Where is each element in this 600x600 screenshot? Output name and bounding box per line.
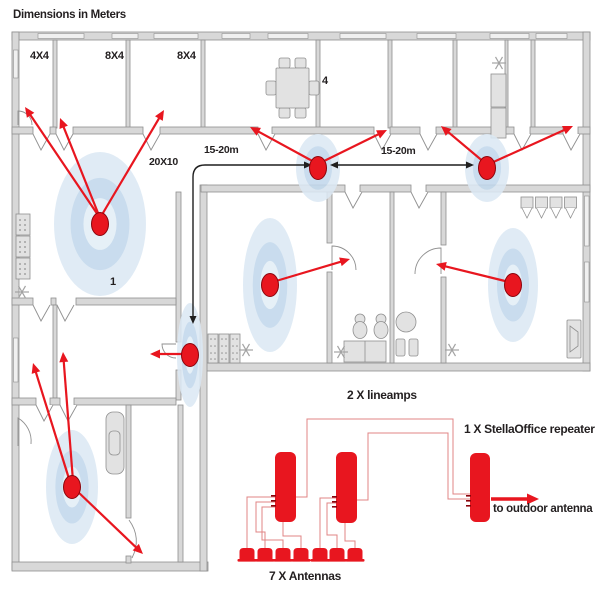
shelf-dot [221,358,223,360]
signal-arrowhead [150,350,160,359]
shelf-dot [232,358,234,360]
chair [409,339,418,356]
device-port [466,500,471,502]
shelf-dot [221,345,223,347]
wall [453,40,457,128]
shelf-row [208,334,240,363]
shelf-dot [221,338,223,340]
device-port [466,495,471,497]
shelf-dot [214,352,216,354]
ac-snowflake-icon [492,57,506,69]
antenna-body [258,548,273,559]
wall [50,127,56,134]
wire [327,503,337,549]
shelf-v [16,214,30,279]
wall [53,305,57,398]
wire [345,523,355,549]
shelf-dot [19,273,21,275]
wall [327,272,332,363]
chair [279,108,290,118]
shelf-dot [210,338,212,340]
antenna-dot [310,157,327,180]
lineamp-2 [336,452,357,523]
window [154,34,198,39]
chair [396,339,405,356]
door-arc [332,246,356,270]
hook-point [551,208,561,218]
device-port [271,505,276,507]
wall [53,40,57,128]
stellaoffice-repeater [470,453,490,522]
chair [295,108,306,118]
schematic-antenna [292,548,311,562]
wall [441,192,446,245]
wall [390,127,420,134]
schematic-antenna [328,548,347,562]
antenna-body [240,548,255,559]
shelf-dot [214,358,216,360]
device-port [271,495,276,497]
wall [201,40,205,128]
wall [12,562,208,571]
shelf-dot [24,229,26,231]
wall [51,298,56,305]
wall [327,192,332,243]
shelf-dot [19,224,21,226]
schematic-antenna [346,548,365,562]
window [222,34,250,39]
door-arc [18,418,31,446]
wall [73,127,143,134]
antenna-dot [182,344,199,367]
shelf-dot [232,338,234,340]
bathtub-inner [109,431,120,455]
shelf-dot [24,268,26,270]
lineamp-1 [275,452,296,522]
shelf-dot [210,345,212,347]
hook-point [566,208,576,218]
antenna-base [328,559,347,562]
chair [295,58,306,68]
cabinet-upper [491,74,506,107]
antenna-body [294,548,309,559]
chair [266,81,276,95]
antenna-base [238,559,257,562]
door-swing [514,134,531,150]
window [490,34,529,39]
shelf-dot [225,345,227,347]
equipment-schematic [238,419,540,562]
round-table [396,312,416,332]
signal-arrowhead [339,258,350,267]
ac-snowflake-icon [445,344,459,356]
window [112,34,138,39]
device-port [332,496,337,498]
wire [256,502,275,549]
door-swing [345,192,362,208]
wall [50,398,60,405]
wall [126,40,130,128]
window [14,338,19,382]
hook-box [550,197,562,208]
shelf-dot [19,246,21,248]
wall [126,405,131,518]
hook-point [537,208,547,218]
measure-label-left: 15-20m [204,144,238,156]
shelf-dot [236,352,238,354]
signal-arrowhead [25,107,34,118]
signal-arrowhead [59,352,68,362]
shelf-dot [214,345,216,347]
wall [176,192,181,342]
antenna-body [330,548,345,559]
antenna-base [292,559,311,562]
device-port [271,500,276,502]
chair [309,81,319,95]
wall [531,40,535,128]
shelf-dot [236,358,238,360]
floor-plan-page: Dimensions in Meters 4X4 8X4 8X4 4 1 20X… [0,0,600,600]
room-label-4: 4 [322,75,328,87]
shelf-dot [232,352,234,354]
page-title: Dimensions in Meters [13,9,126,21]
room-label-8x4-a: 8X4 [105,50,124,62]
antenna-dot [479,157,496,180]
wall [74,398,176,405]
bathtub [106,412,124,474]
wall [390,192,394,363]
device-port [332,501,337,503]
wire [296,419,470,497]
hook-box [521,197,533,208]
wall [200,363,590,371]
door-swing [33,305,50,321]
shelf-dot [210,352,212,354]
shelf-dot [225,338,227,340]
round-table [396,312,416,332]
schematic-antenna [256,548,275,562]
shelf-unit [16,214,30,235]
wall [360,185,411,192]
door-arc [129,520,136,558]
hook-box [565,197,577,208]
shelf-dot [221,352,223,354]
shelf-dot [24,263,26,265]
antenna-dot [92,213,109,236]
shelf-dot [225,358,227,360]
cabinet [491,74,506,138]
antenna-dot [262,274,279,297]
device-port [466,505,471,507]
shelf-dot [214,338,216,340]
door-swing [563,134,580,150]
wall [12,398,36,405]
counter [344,341,386,362]
wall [426,185,590,192]
outdoor-antenna-label: to outdoor antenna [493,503,592,515]
wire [283,522,301,549]
conference-table [276,68,309,108]
hook-box [536,197,548,208]
schematic-antenna [238,548,257,562]
door-swing [57,305,74,321]
hook-point [522,208,532,218]
shelf-dot [236,338,238,340]
toilet [353,314,367,339]
table-set [266,58,319,118]
window [38,34,84,39]
wall [126,556,131,563]
toilet [374,314,388,339]
shelf-dot [225,352,227,354]
shelf-dot [24,219,26,221]
wall [578,127,590,134]
antenna-body [348,548,363,559]
antenna-body [276,548,291,559]
window [585,262,590,302]
antennas-count-label: 7 X Antennas [269,569,341,583]
room-label-1: 1 [110,276,116,288]
antenna-dot [64,476,81,499]
wall [388,40,392,128]
antenna-base [274,559,293,562]
shelf-dot [24,241,26,243]
antenna-dot [505,274,522,297]
window [268,34,308,39]
shelf-dot [210,358,212,360]
wall [160,127,258,134]
door-arc [415,248,441,274]
shelf-dot [24,224,26,226]
chair [279,58,290,68]
schematic-antenna [311,548,330,562]
wall [76,298,176,305]
measure-label-right: 15-20m [381,145,415,157]
shelf-dot [24,246,26,248]
door-swing [420,134,437,150]
wire [247,497,275,549]
toilet-bowl [374,322,388,339]
signal-arrowhead [32,363,41,374]
shelf-unit [208,334,218,363]
shelf-dot [19,263,21,265]
hooks [521,197,577,218]
cabinet-lower [491,108,506,138]
shelf-dot [236,345,238,347]
antenna-base [346,559,365,562]
shelf-dot [19,219,21,221]
lineamps-label: 2 X lineamps [347,388,417,402]
shelf-dot [19,241,21,243]
window [14,50,19,78]
door-swing [411,192,428,208]
shelf-dot [19,251,21,253]
shelf-unit [16,236,30,257]
window [585,196,590,246]
antenna-body [313,548,328,559]
chair [396,339,405,356]
ac-snowflake-icon [239,344,253,356]
wall [178,405,183,562]
room-label-8x4-b: 8X4 [177,50,196,62]
wall [12,298,33,305]
door-arc [162,344,176,358]
antenna-base [256,559,275,562]
wall [272,127,374,134]
speaker [567,320,581,358]
room-label-4x4: 4X4 [30,50,49,62]
shelf-unit [16,258,30,279]
schematic-antenna [274,548,293,562]
room-label-20x10: 20X10 [149,156,178,168]
antenna-base [311,559,330,562]
device-port [332,506,337,508]
shelf-unit [230,334,240,363]
shelf-dot [24,273,26,275]
shelf-dot [24,251,26,253]
wall [12,127,33,134]
shelf-dot [19,229,21,231]
window [417,34,456,39]
toilet-bowl [353,322,367,339]
speaker-box [567,320,581,358]
wire [320,498,336,549]
repeater-label: 1 X StellaOffice repeater [464,422,595,436]
shelf-dot [232,345,234,347]
shelf-dot [19,268,21,270]
chair [409,339,418,356]
window [536,34,567,39]
window [340,34,386,39]
shelf-unit [219,334,229,363]
